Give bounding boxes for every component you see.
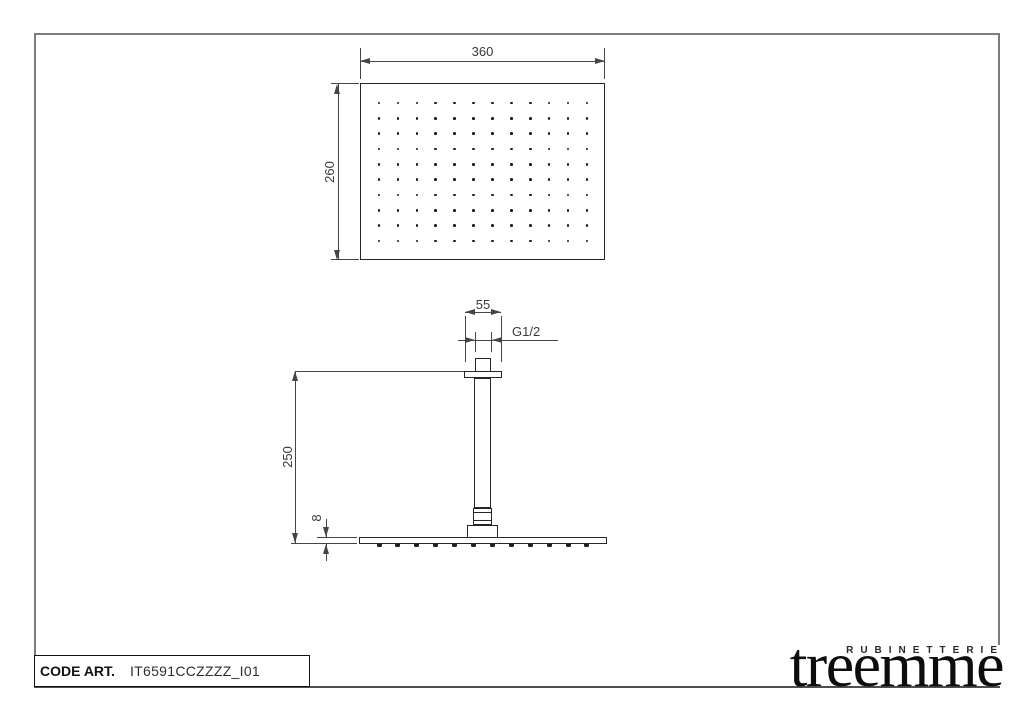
nozzle-dot	[491, 117, 494, 120]
code-art-box: CODE ART. IT6591CCZZZZ_I01	[34, 655, 310, 687]
nozzle-tip	[414, 544, 419, 547]
nozzle-dot	[548, 117, 551, 120]
nozzle-dot	[434, 224, 437, 227]
nozzle-tip	[377, 544, 382, 547]
nozzle-dot	[491, 224, 494, 227]
page-frame-right	[998, 33, 1000, 645]
nozzle-dot	[453, 194, 456, 197]
dim-width-label: 360	[360, 44, 605, 59]
nozzle-dot	[586, 117, 589, 120]
nozzle-dot	[510, 132, 513, 135]
nozzle-dot	[586, 148, 589, 151]
nozzle-dot	[434, 148, 437, 151]
nozzle-dot	[567, 117, 570, 120]
nozzle-tip	[528, 544, 533, 547]
nozzle-dot	[434, 102, 437, 105]
nozzle-dot	[416, 194, 419, 197]
nozzle-dot	[453, 102, 456, 105]
nozzle-dot	[472, 194, 475, 197]
nozzle-dot	[434, 240, 437, 243]
nozzle-dot	[472, 117, 475, 120]
nozzle-dot	[510, 240, 513, 243]
ceiling-line	[296, 371, 464, 372]
nozzle-dot	[586, 240, 589, 243]
nozzle-dot	[567, 194, 570, 197]
nozzle-dot	[416, 132, 419, 135]
dim-drop-label: 250	[280, 437, 296, 477]
nozzle-dot	[510, 148, 513, 151]
nozzle-dot	[453, 224, 456, 227]
nozzle-tip	[566, 544, 571, 547]
nozzle-dot	[434, 132, 437, 135]
nozzle-dot	[453, 209, 456, 212]
nozzle-tip	[547, 544, 552, 547]
dim-height-label: 260	[322, 152, 338, 192]
nozzle-dot	[586, 209, 589, 212]
nozzle-dot	[548, 148, 551, 151]
nozzle-dot	[378, 224, 381, 227]
page-frame-top	[34, 33, 1000, 35]
nozzle-dot	[548, 224, 551, 227]
nozzle-dot	[586, 102, 589, 105]
nozzle-dot	[378, 102, 381, 105]
nozzle-dot	[453, 132, 456, 135]
dim-flange-label: 55	[465, 297, 501, 312]
nozzle-dot	[567, 240, 570, 243]
nozzle-dot	[472, 132, 475, 135]
nozzle-dot	[472, 178, 475, 181]
nozzle-dot	[472, 102, 475, 105]
nozzle-dot	[510, 163, 513, 166]
nozzle-dot	[378, 163, 381, 166]
nozzle-dot	[472, 224, 475, 227]
nozzle-dot	[586, 178, 589, 181]
nozzle-dot	[378, 148, 381, 151]
nozzle-dot	[567, 148, 570, 151]
nozzle-dot	[529, 148, 532, 151]
thread-stub	[475, 358, 491, 373]
nozzle-dot	[567, 224, 570, 227]
nozzle-dot	[510, 102, 513, 105]
nozzle-dot	[548, 132, 551, 135]
nozzle-dot	[529, 209, 532, 212]
nozzle-dot	[567, 209, 570, 212]
nozzle-dot	[416, 240, 419, 243]
nozzle-dot	[529, 224, 532, 227]
nozzle-dot	[491, 240, 494, 243]
nozzle-dot	[491, 194, 494, 197]
nozzle-dot	[510, 224, 513, 227]
nozzle-dot	[472, 209, 475, 212]
nozzle-dot	[378, 117, 381, 120]
nozzle-dot	[397, 194, 400, 197]
nozzle-dot	[510, 117, 513, 120]
nozzle-dot	[453, 117, 456, 120]
nozzle-tip	[395, 544, 400, 547]
brand-name: treemme	[790, 633, 1003, 697]
page-frame-left	[34, 33, 36, 687]
nozzle-dot	[434, 209, 437, 212]
nozzle-dot	[378, 240, 381, 243]
nozzle-dot	[434, 163, 437, 166]
nozzle-dot	[567, 102, 570, 105]
nozzle-dot	[586, 163, 589, 166]
nozzle-dot	[529, 194, 532, 197]
nozzle-dot	[548, 240, 551, 243]
nozzle-tip	[584, 544, 589, 547]
shower-plate-side-view	[359, 537, 608, 544]
nozzle-dot	[453, 240, 456, 243]
nozzle-dot	[397, 117, 400, 120]
nozzle-dot	[586, 194, 589, 197]
nozzle-dot	[567, 178, 570, 181]
nozzle-dot	[529, 240, 532, 243]
nozzle-tip	[433, 544, 438, 547]
nozzle-dot	[567, 163, 570, 166]
nozzle-dot	[397, 209, 400, 212]
nozzle-dot	[491, 178, 494, 181]
nozzle-dot	[472, 163, 475, 166]
union-nut	[473, 508, 493, 526]
nozzle-dot	[491, 132, 494, 135]
nozzle-dot	[397, 102, 400, 105]
nozzle-dot	[491, 102, 494, 105]
nozzle-dot	[586, 132, 589, 135]
nozzle-tip	[471, 544, 476, 547]
nozzle-dot	[529, 102, 532, 105]
nozzle-dot	[472, 148, 475, 151]
nozzle-dot	[397, 163, 400, 166]
nozzle-dot	[491, 148, 494, 151]
nozzle-dot	[416, 178, 419, 181]
nozzle-dot	[397, 224, 400, 227]
nozzle-dot	[453, 148, 456, 151]
code-art-value: IT6591CCZZZZ_I01	[130, 663, 260, 679]
nozzle-dot	[529, 163, 532, 166]
nozzle-dot	[416, 163, 419, 166]
nozzle-grid	[360, 83, 605, 260]
nozzle-dot	[434, 194, 437, 197]
code-art-label: CODE ART.	[40, 663, 115, 679]
nozzle-dot	[416, 209, 419, 212]
nozzle-dot	[397, 178, 400, 181]
nozzle-dot	[434, 178, 437, 181]
nozzle-dot	[548, 194, 551, 197]
nozzle-dot	[397, 240, 400, 243]
nozzle-dot	[453, 178, 456, 181]
nozzle-dot	[491, 163, 494, 166]
nozzle-dot	[491, 209, 494, 212]
nozzle-dot	[416, 224, 419, 227]
nozzle-dot	[378, 209, 381, 212]
nozzle-dot	[548, 209, 551, 212]
nozzle-dot	[529, 132, 532, 135]
nozzle-dot	[567, 132, 570, 135]
nozzle-dot	[378, 194, 381, 197]
nozzle-dot	[472, 240, 475, 243]
nozzle-dot	[510, 209, 513, 212]
nozzle-dot	[548, 102, 551, 105]
nozzle-dot	[434, 117, 437, 120]
nozzle-dot	[416, 117, 419, 120]
nozzle-tip	[452, 544, 457, 547]
arm-base-block	[467, 525, 498, 539]
dim-thickness-label: 8	[309, 498, 325, 538]
nozzle-dot	[453, 163, 456, 166]
nozzle-dot	[397, 148, 400, 151]
nozzle-dot	[416, 102, 419, 105]
nozzle-dot	[529, 178, 532, 181]
nozzle-dot	[510, 178, 513, 181]
thread-label: G1/2	[512, 324, 540, 339]
nozzle-dot	[548, 178, 551, 181]
nozzle-dot	[416, 148, 419, 151]
nozzle-dot	[529, 117, 532, 120]
nozzle-dot	[510, 194, 513, 197]
nozzle-dot	[548, 163, 551, 166]
technical-drawing-page: 360 260 55	[0, 0, 1024, 723]
shower-arm-pipe	[474, 378, 491, 509]
nozzle-dot	[397, 132, 400, 135]
nozzle-dot	[378, 178, 381, 181]
nozzle-dot	[378, 132, 381, 135]
nozzle-dot	[586, 224, 589, 227]
nozzle-tip	[490, 544, 495, 547]
nozzle-tip	[509, 544, 514, 547]
